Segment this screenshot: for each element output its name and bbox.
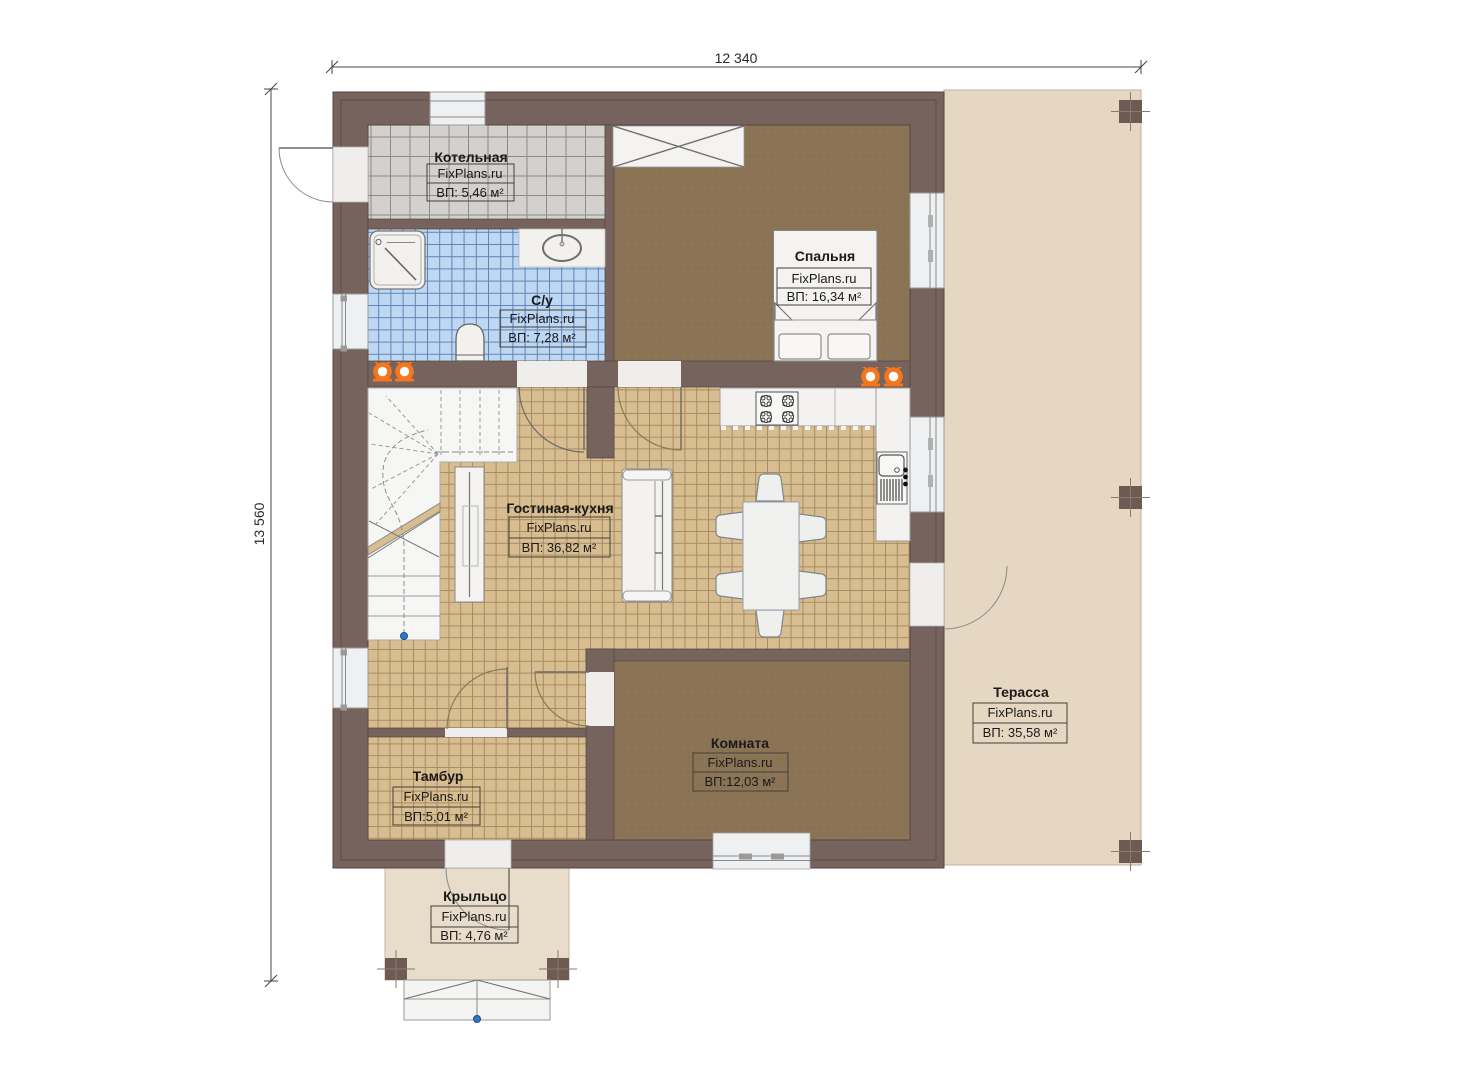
svg-text:Гостиная-кухня: Гостиная-кухня — [506, 500, 613, 516]
svg-text:ВП:12,03 м²: ВП:12,03 м² — [704, 774, 776, 789]
svg-text:Спальня: Спальня — [795, 248, 855, 264]
svg-text:FixPlans.ru: FixPlans.ru — [707, 755, 772, 770]
svg-text:Котельная: Котельная — [434, 149, 507, 165]
svg-text:ВП: 16,34 м²: ВП: 16,34 м² — [787, 289, 862, 304]
svg-text:ВП: 7,28 м²: ВП: 7,28 м² — [508, 330, 576, 345]
svg-text:Крыльцо: Крыльцо — [443, 888, 507, 904]
svg-text:Тамбур: Тамбур — [413, 768, 464, 784]
svg-text:ВП: 5,46 м²: ВП: 5,46 м² — [436, 185, 504, 200]
svg-text:ВП: 36,82 м²: ВП: 36,82 м² — [522, 540, 597, 555]
svg-text:FixPlans.ru: FixPlans.ru — [987, 705, 1052, 720]
svg-text:С/у: С/у — [531, 292, 553, 308]
svg-text:Комната: Комната — [711, 735, 769, 751]
svg-text:12 340: 12 340 — [715, 50, 758, 66]
svg-text:FixPlans.ru: FixPlans.ru — [437, 166, 502, 181]
svg-text:FixPlans.ru: FixPlans.ru — [526, 520, 591, 535]
svg-text:ВП:5,01 м²: ВП:5,01 м² — [404, 809, 468, 824]
svg-text:ВП: 35,58 м²: ВП: 35,58 м² — [983, 725, 1058, 740]
svg-text:Терасса: Терасса — [993, 684, 1049, 700]
svg-text:FixPlans.ru: FixPlans.ru — [791, 271, 856, 286]
svg-text:FixPlans.ru: FixPlans.ru — [441, 909, 506, 924]
svg-text:13 560: 13 560 — [251, 502, 267, 545]
svg-text:ВП: 4,76 м²: ВП: 4,76 м² — [440, 928, 508, 943]
svg-text:FixPlans.ru: FixPlans.ru — [403, 789, 468, 804]
svg-text:FixPlans.ru: FixPlans.ru — [509, 311, 574, 326]
